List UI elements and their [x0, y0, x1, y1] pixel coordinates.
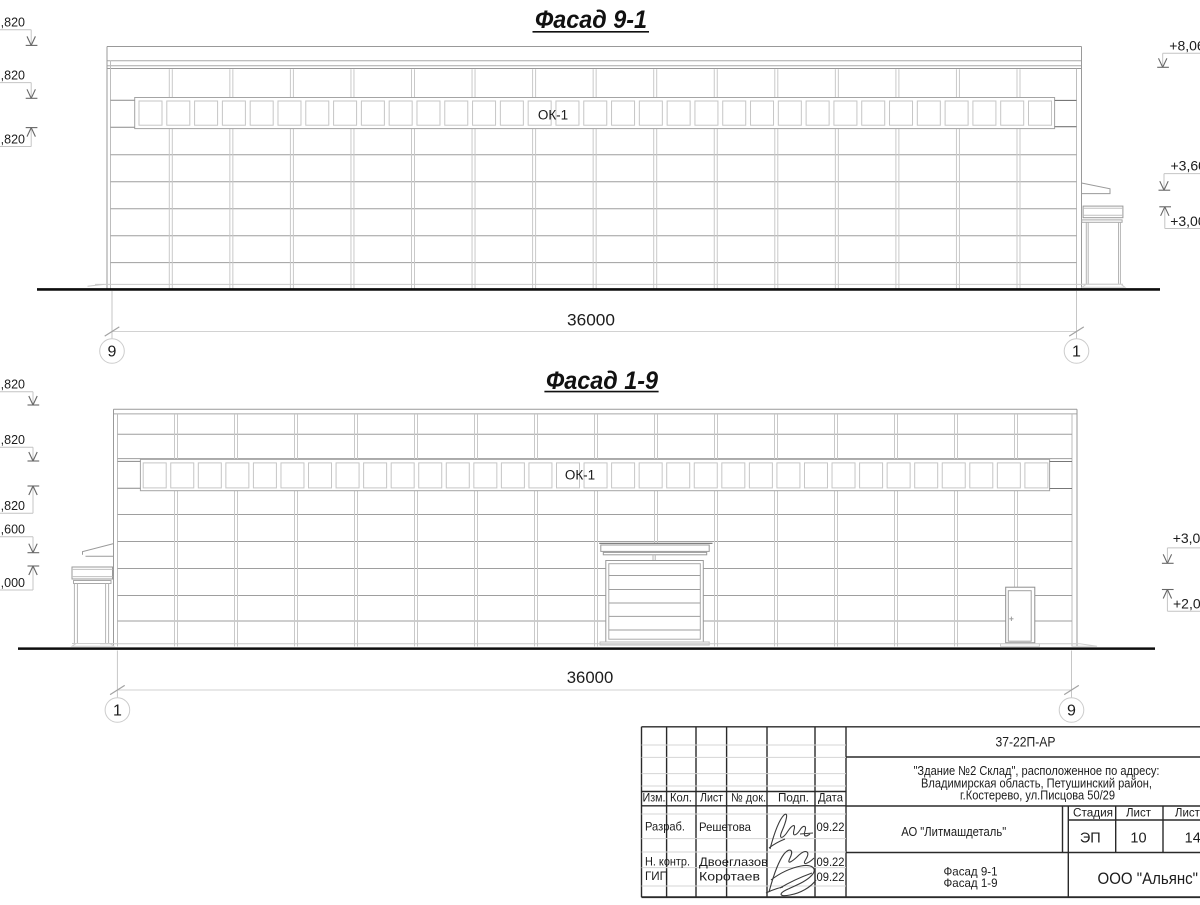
svg-text:ОК-1: ОК-1	[565, 468, 595, 483]
svg-text:ООО "Альянс": ООО "Альянс"	[1098, 869, 1199, 888]
svg-text:+8,06: +8,06	[1169, 37, 1200, 53]
svg-text:Разраб.: Разраб.	[645, 820, 685, 834]
svg-text:Подп.: Подп.	[778, 791, 809, 805]
svg-text:+3,0: +3,0	[1173, 530, 1200, 546]
svg-text:ОК-1: ОК-1	[538, 108, 568, 123]
svg-text:Изм.: Изм.	[643, 791, 666, 805]
svg-text:,820: ,820	[1, 69, 25, 83]
svg-text:Фасад 1-9: Фасад 1-9	[944, 876, 998, 890]
svg-text:Коротаев: Коротаев	[699, 870, 760, 884]
svg-text:Решетова: Решетова	[699, 820, 751, 834]
svg-text:Н. контр.: Н. контр.	[645, 855, 690, 869]
svg-text:ЭП: ЭП	[1080, 831, 1101, 847]
svg-text:ГИП: ГИП	[645, 869, 668, 883]
svg-text:Дата: Дата	[818, 791, 843, 805]
svg-text:+3,60: +3,60	[1171, 158, 1200, 174]
svg-text:9: 9	[1067, 703, 1076, 720]
svg-text:,820: ,820	[1, 378, 25, 392]
svg-text:Лист: Лист	[700, 791, 723, 805]
svg-text:+3,00: +3,00	[1170, 213, 1200, 229]
svg-text:,000: ,000	[1, 576, 25, 590]
svg-text:Кол.: Кол.	[670, 791, 692, 805]
svg-text:09.22: 09.22	[817, 855, 845, 869]
svg-text:+2,0: +2,0	[1173, 596, 1200, 612]
svg-text:,820: ,820	[1, 433, 25, 447]
svg-text:09.22: 09.22	[817, 870, 845, 884]
svg-text:Двоеглазов: Двоеглазов	[699, 855, 768, 869]
svg-text:Стадия: Стадия	[1073, 808, 1113, 820]
svg-text:,600: ,600	[1, 523, 25, 537]
svg-text:09.22: 09.22	[817, 820, 845, 834]
svg-text:36000: 36000	[567, 312, 615, 330]
svg-text:1: 1	[1072, 344, 1081, 361]
svg-text:Фасад 1-9: Фасад 1-9	[546, 367, 658, 395]
svg-text:,820: ,820	[1, 499, 25, 513]
svg-text:г.Костерево, ул.Писцова 50/29: г.Костерево, ул.Писцова 50/29	[960, 788, 1115, 803]
svg-text:1: 1	[113, 703, 122, 720]
svg-text:№ док.: № док.	[731, 791, 766, 805]
svg-text:14: 14	[1185, 831, 1200, 847]
svg-text:37-22П-АР: 37-22П-АР	[996, 735, 1056, 750]
svg-text:,820: ,820	[1, 16, 25, 30]
svg-text:Листов: Листов	[1175, 808, 1200, 820]
svg-text:10: 10	[1130, 831, 1146, 847]
svg-text:Фасад 9-1: Фасад 9-1	[535, 6, 647, 34]
svg-text:Лист: Лист	[1126, 808, 1152, 820]
svg-text:9: 9	[108, 344, 117, 361]
svg-text:АО "Литмашдеталь": АО "Литмашдеталь"	[901, 824, 1006, 839]
svg-text:,820: ,820	[1, 133, 25, 147]
svg-text:36000: 36000	[567, 669, 614, 687]
